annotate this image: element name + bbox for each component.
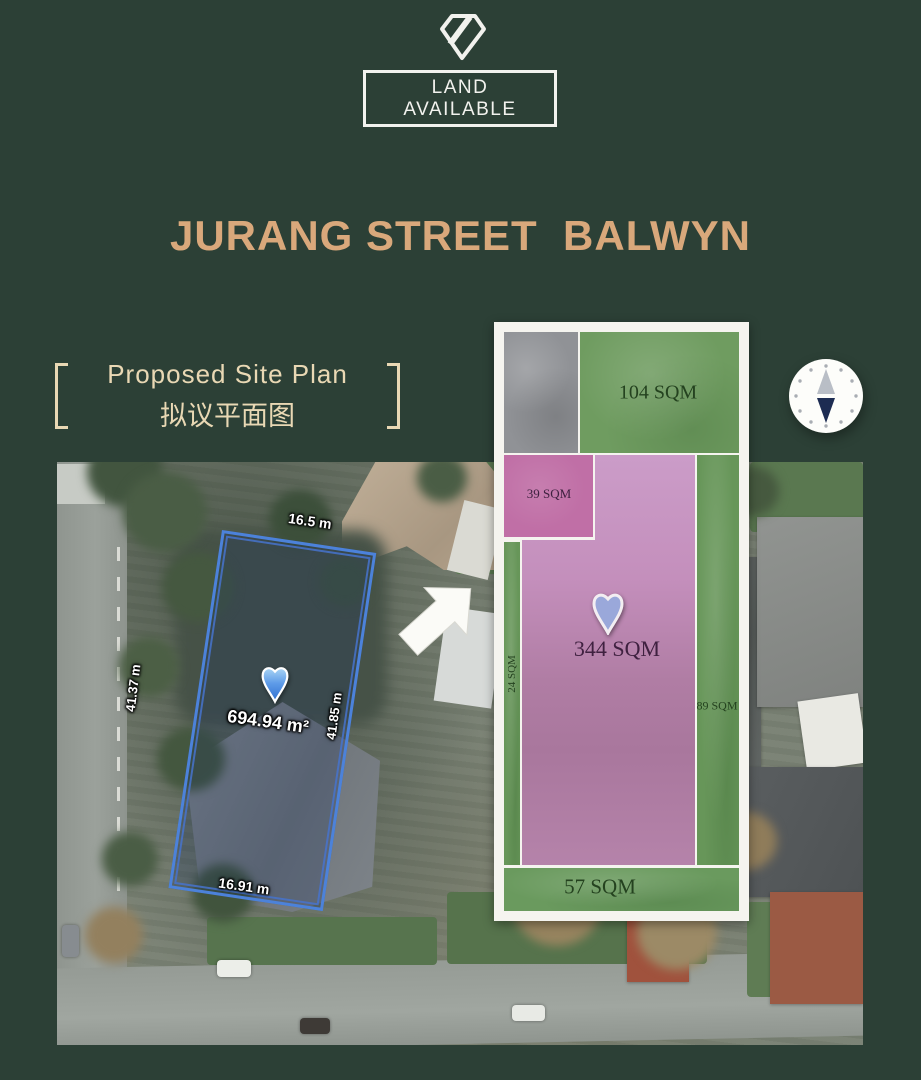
bracket-right-icon [387,363,400,429]
direction-arrow-icon [390,570,486,666]
badge-line1: LAND [432,77,489,99]
land-available-badge: LAND AVAILABLE [363,70,557,127]
tree-bare [85,907,143,963]
compass-icon [786,356,866,436]
car [217,960,251,977]
car [62,925,79,957]
plan-strip-89sqm [697,455,739,865]
tree [123,472,207,552]
plan-strip-24sqm [504,542,520,865]
page-title: JURANG STREET BALWYN [0,212,921,260]
aerial-roof-brick [770,892,863,1004]
badge-line2: AVAILABLE [403,99,516,121]
car [512,1005,545,1021]
section-heading-en: Proposed Site Plan [68,359,387,390]
site-plan-overlay: 104 SQM 39 SQM 344 SQM 24 SQM 89 SQM 57 … [494,322,749,921]
plan-label-104sqm: 104 SQM [619,382,697,405]
bracket-left-icon [55,363,68,429]
plan-map-pin-icon [591,591,625,635]
plan-label-89sqm: 89 SQM [696,699,737,714]
lot-map-pin-icon [260,664,290,704]
section-label: Proposed Site Plan 拟议平面图 [55,352,400,440]
plan-label-57sqm: 57 SQM [564,875,636,900]
plan-label-344sqm: 344 SQM [574,636,660,662]
tree [102,832,158,886]
aerial-roof-white [797,693,863,771]
diamond-logo-icon [430,10,490,64]
aerial-lawn [207,917,437,965]
aerial-street-bottom [57,951,863,1045]
plan-driveway-area [504,332,578,453]
section-heading-zh: 拟议平面图 [68,394,387,433]
car [300,1018,330,1034]
aerial-roof-east [757,517,863,707]
plan-label-24sqm: 24 SQM [506,655,518,693]
plan-label-39sqm: 39 SQM [527,486,571,502]
